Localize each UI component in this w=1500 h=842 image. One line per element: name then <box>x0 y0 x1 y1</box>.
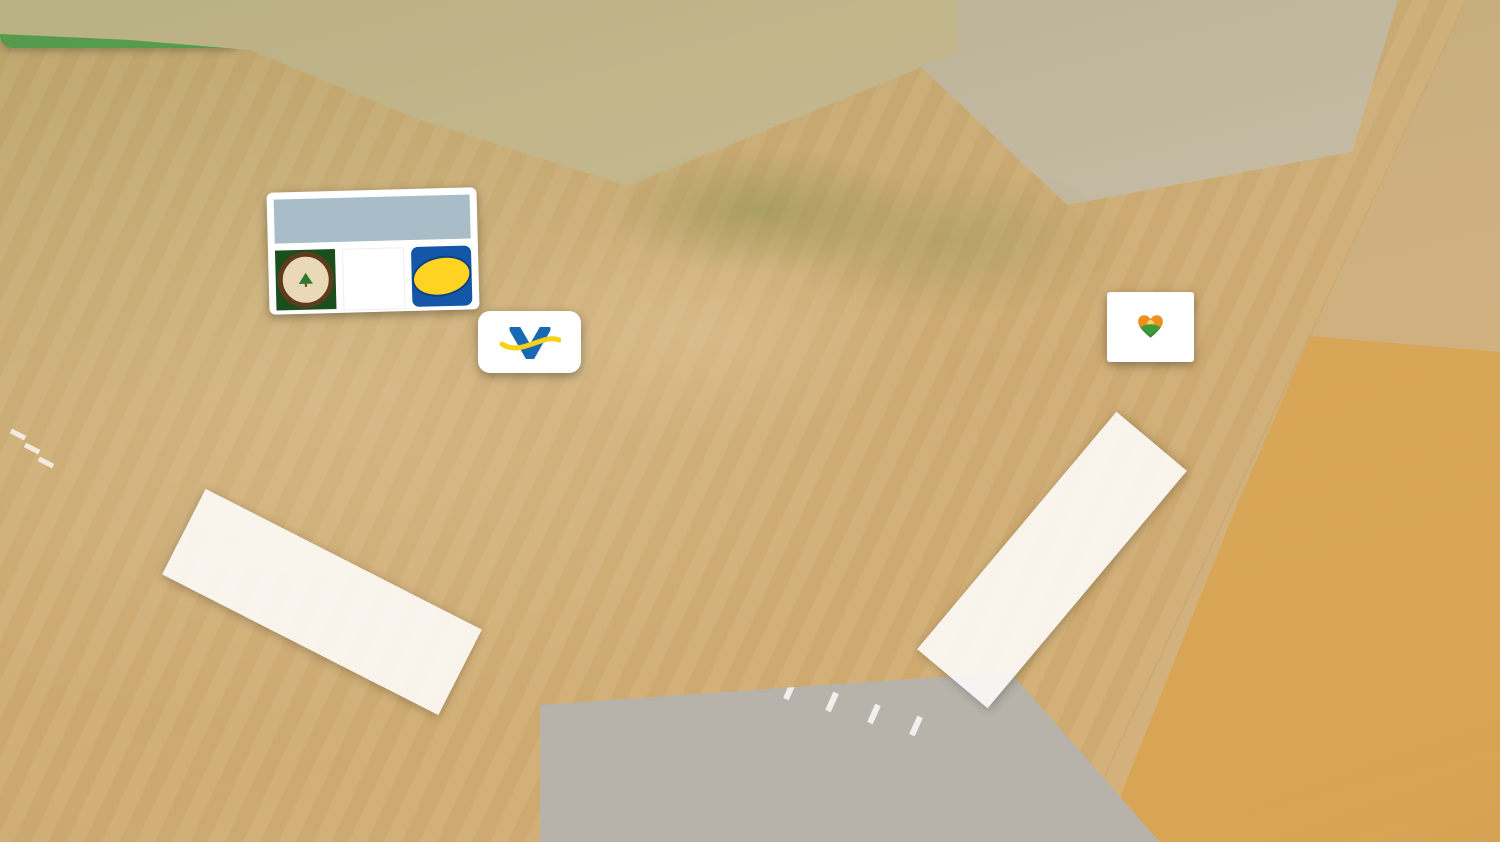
dads-cookies-banner <box>274 194 471 243</box>
tree-icon <box>299 273 313 284</box>
heart-landscape-icon <box>1137 314 1164 339</box>
rare-earth-coffee-seal <box>277 251 334 308</box>
day-and-night-oval <box>408 251 475 302</box>
valero-logo-card <box>478 311 581 373</box>
valero-v-icon <box>499 327 561 359</box>
tenant-logo-row <box>275 245 473 312</box>
w-restaurant-logo <box>342 247 406 311</box>
tenant-sign-card <box>266 187 479 314</box>
aerial-photo <box>0 0 1500 842</box>
rare-earth-coffee-logo <box>275 249 337 311</box>
tree-trunk-icon <box>305 284 307 287</box>
day-and-night-markets-logo <box>411 245 473 307</box>
camarena-health-logo-card <box>1107 292 1194 362</box>
property-boundary-outline <box>0 0 1500 842</box>
